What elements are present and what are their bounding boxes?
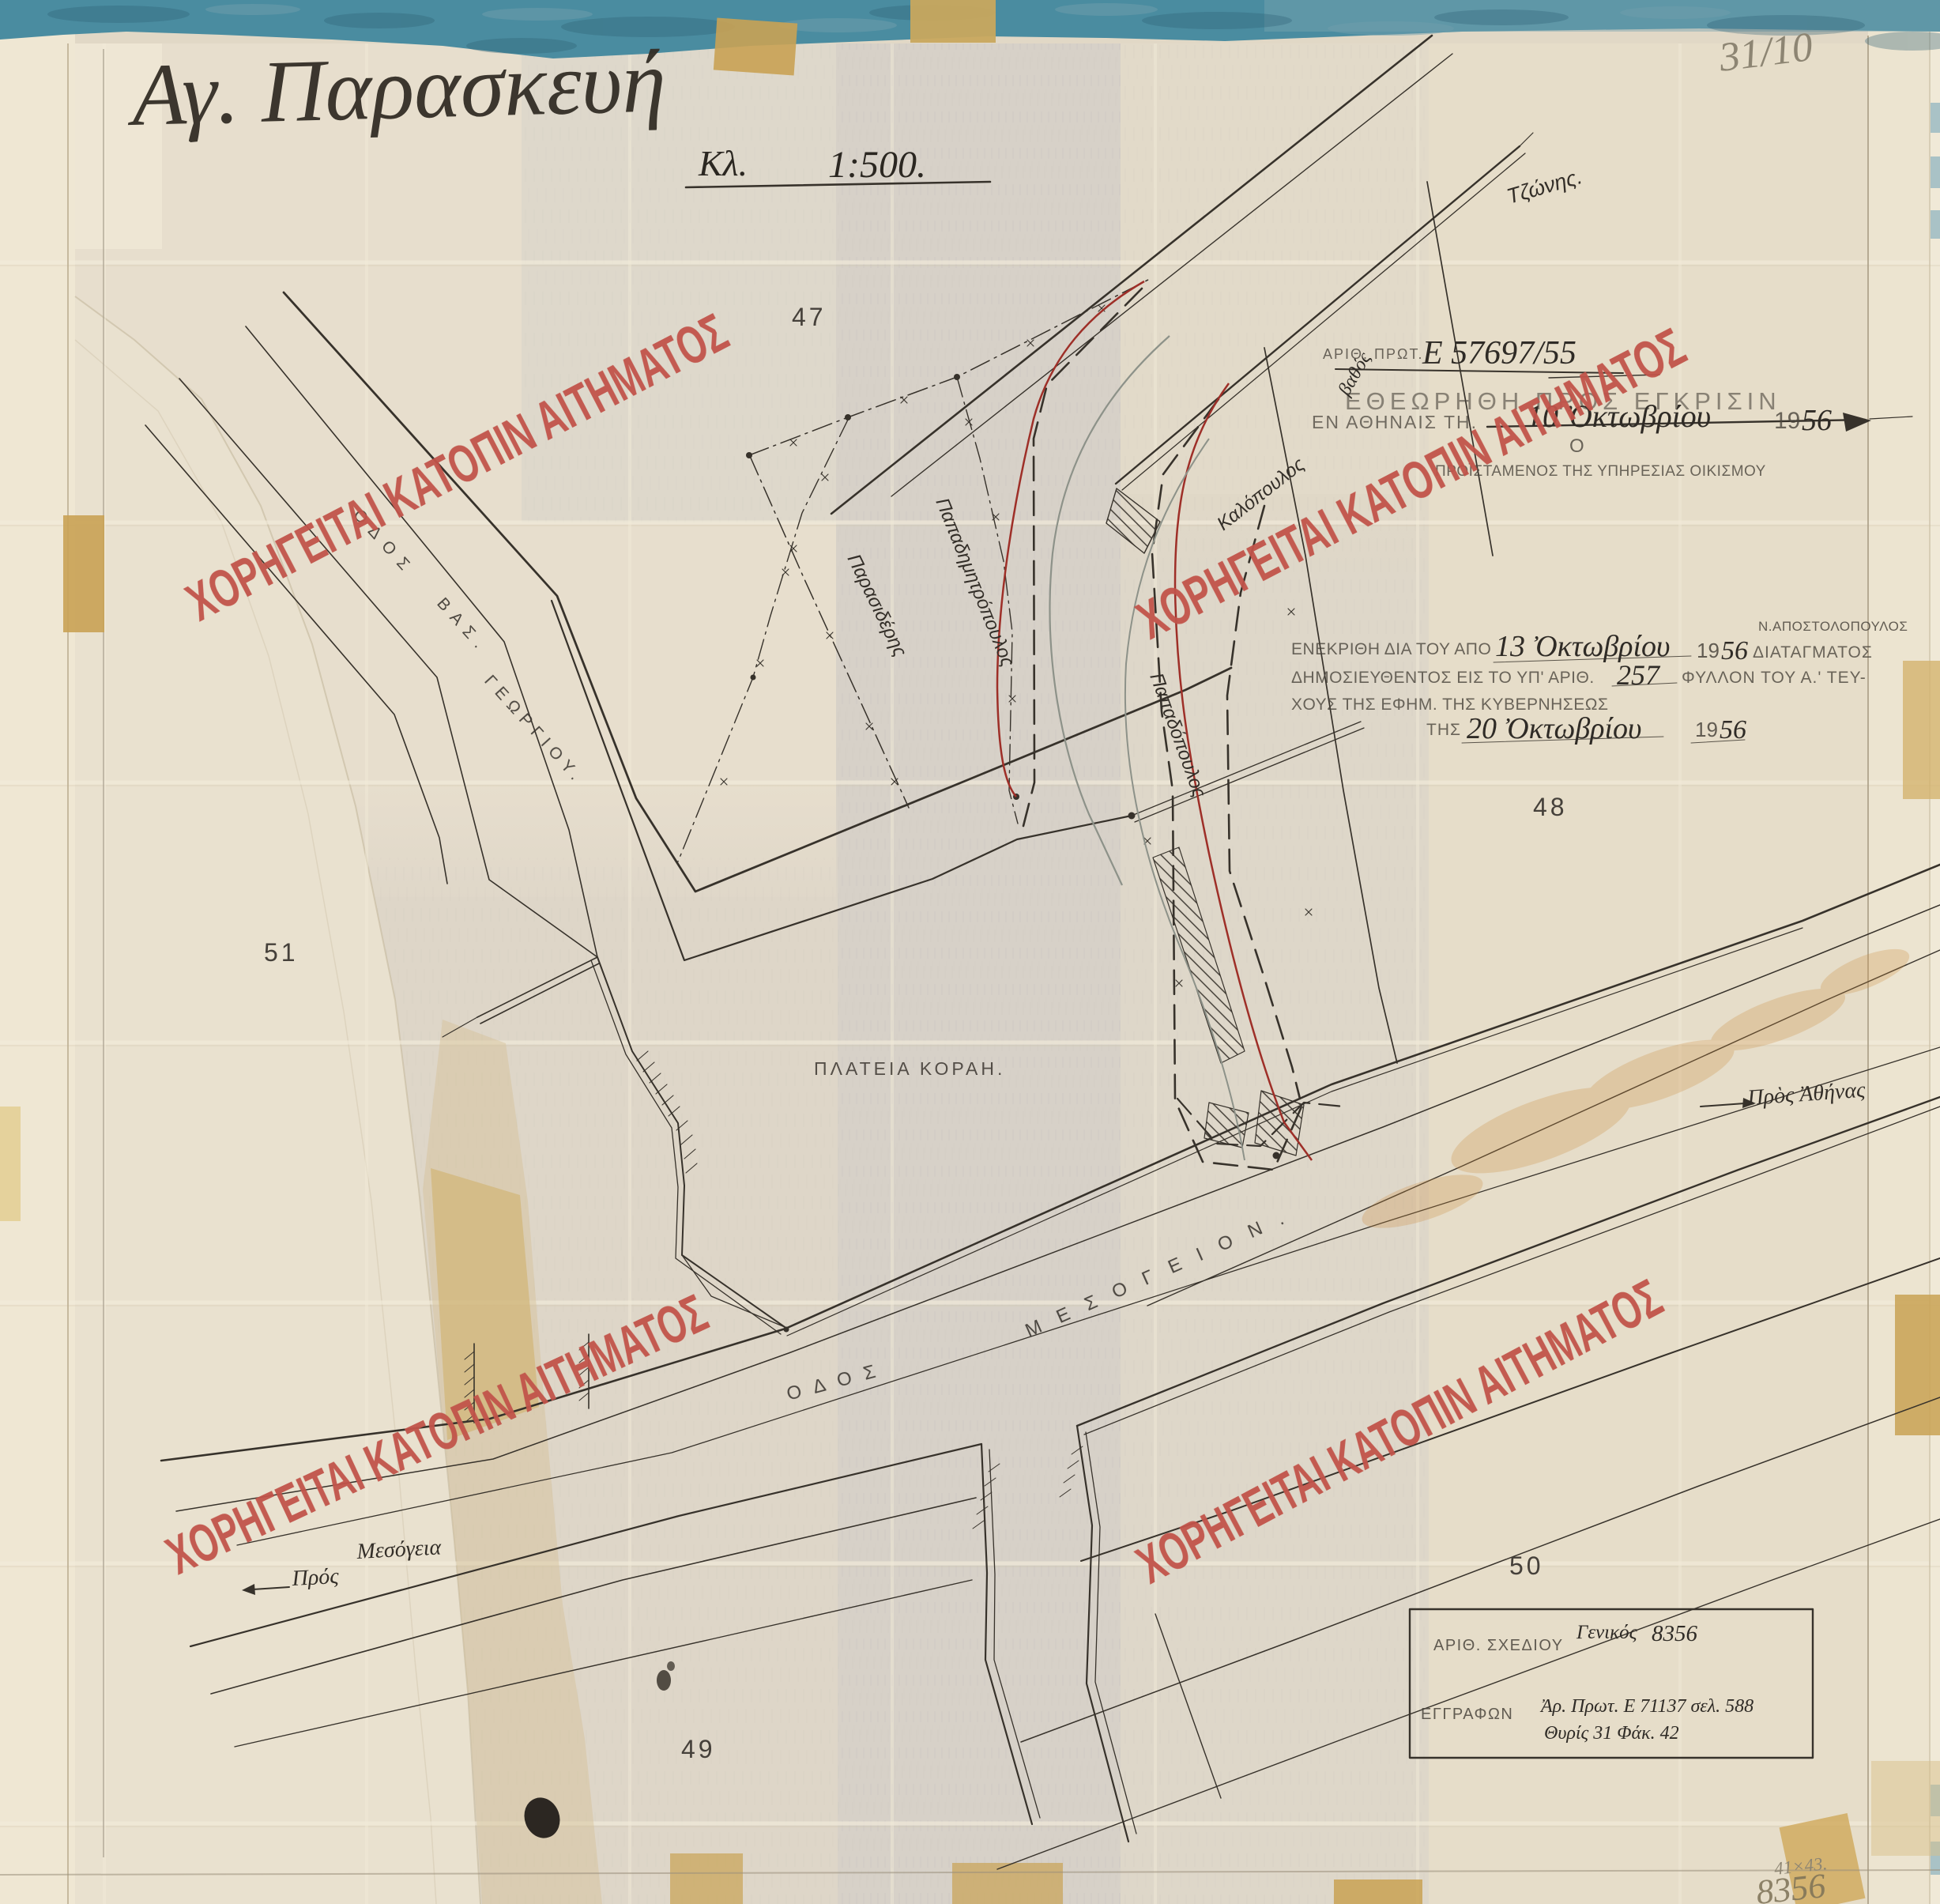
svg-text:ΔΙΑΤΑΓΜΑΤΟΣ: ΔΙΑΤΑΓΜΑΤΟΣ bbox=[1753, 643, 1873, 662]
svg-text:13 Ὀκτωβρίου: 13 Ὀκτωβρίου bbox=[1495, 630, 1671, 663]
svg-text:Αγ. Παρασκευή: Αγ. Παρασκευή bbox=[125, 32, 667, 145]
svg-text:Μεσόγεια: Μεσόγεια bbox=[356, 1535, 443, 1564]
svg-text:Θυρίς 31 Φάκ. 42: Θυρίς 31 Φάκ. 42 bbox=[1544, 1723, 1679, 1744]
svg-text:ΧΟΥΣ ΤΗΣ ΕΦΗΜ. ΤΗΣ ΚΥΒΕΡΝΗΣΕΩΣ: ΧΟΥΣ ΤΗΣ ΕΦΗΜ. ΤΗΣ ΚΥΒΕΡΝΗΣΕΩΣ bbox=[1291, 696, 1608, 714]
svg-text:19: 19 bbox=[1695, 718, 1718, 741]
svg-text:8356: 8356 bbox=[1652, 1621, 1698, 1646]
svg-text:Ν.ΑΠΟΣΤΟΛΟΠΟΥΛΟΣ: Ν.ΑΠΟΣΤΟΛΟΠΟΥΛΟΣ bbox=[1758, 619, 1908, 634]
svg-text:Κλ.: Κλ. bbox=[698, 143, 748, 183]
svg-text:257: 257 bbox=[1617, 659, 1661, 691]
svg-text:Ε 57697/55: Ε 57697/55 bbox=[1422, 335, 1576, 371]
svg-text:48: 48 bbox=[1533, 793, 1568, 821]
svg-text:19: 19 bbox=[1774, 408, 1800, 434]
svg-text:Πρός: Πρός bbox=[291, 1564, 340, 1591]
svg-text:ΠΛΑΤΕΙΑ ΚΟΡΑΗ.: ΠΛΑΤΕΙΑ ΚΟΡΑΗ. bbox=[814, 1058, 1005, 1079]
svg-text:Γενικός: Γενικός bbox=[1576, 1622, 1638, 1643]
svg-text:49: 49 bbox=[681, 1735, 716, 1763]
svg-text:47: 47 bbox=[792, 303, 827, 331]
svg-text:ΤΗΣ: ΤΗΣ bbox=[1426, 721, 1461, 739]
svg-text:56: 56 bbox=[1802, 404, 1832, 437]
svg-text:19: 19 bbox=[1697, 639, 1720, 662]
svg-text:ΔΗΜΟΣΙΕΥΘΕΝΤΟΣ ΕΙΣ ΤΟ ΥΠ' ΑΡΙΘ: ΔΗΜΟΣΙΕΥΘΕΝΤΟΣ ΕΙΣ ΤΟ ΥΠ' ΑΡΙΘ. bbox=[1291, 669, 1595, 687]
svg-text:56: 56 bbox=[1720, 715, 1746, 745]
svg-text:Ο: Ο bbox=[1569, 435, 1584, 457]
svg-text:Ἀρ. Πρωτ. Ε 71137 σελ. 588: Ἀρ. Πρωτ. Ε 71137 σελ. 588 bbox=[1539, 1696, 1754, 1717]
svg-text:ΑΡΙΘ. ΣΧΕΔΙΟΥ: ΑΡΙΘ. ΣΧΕΔΙΟΥ bbox=[1433, 1637, 1564, 1654]
svg-text:56: 56 bbox=[1721, 636, 1748, 665]
svg-text:ΦΥΛΛΟΝ ΤΟΥ Α.' ΤΕΥ-: ΦΥΛΛΟΝ ΤΟΥ Α.' ΤΕΥ- bbox=[1682, 669, 1867, 687]
svg-text:8356: 8356 bbox=[1754, 1866, 1828, 1904]
svg-text:1:500.: 1:500. bbox=[828, 144, 926, 186]
svg-text:ΕΓΓΡΑΦΩΝ: ΕΓΓΡΑΦΩΝ bbox=[1421, 1706, 1513, 1723]
svg-text:51: 51 bbox=[264, 938, 299, 967]
svg-text:ΕΝΕΚΡΙΘΗ ΔΙΑ ΤΟΥ ΑΠΟ: ΕΝΕΚΡΙΘΗ ΔΙΑ ΤΟΥ ΑΠΟ bbox=[1291, 640, 1491, 658]
svg-text:50: 50 bbox=[1509, 1551, 1544, 1580]
svg-text:20 Ὀκτωβρίου: 20 Ὀκτωβρίου bbox=[1467, 712, 1642, 745]
